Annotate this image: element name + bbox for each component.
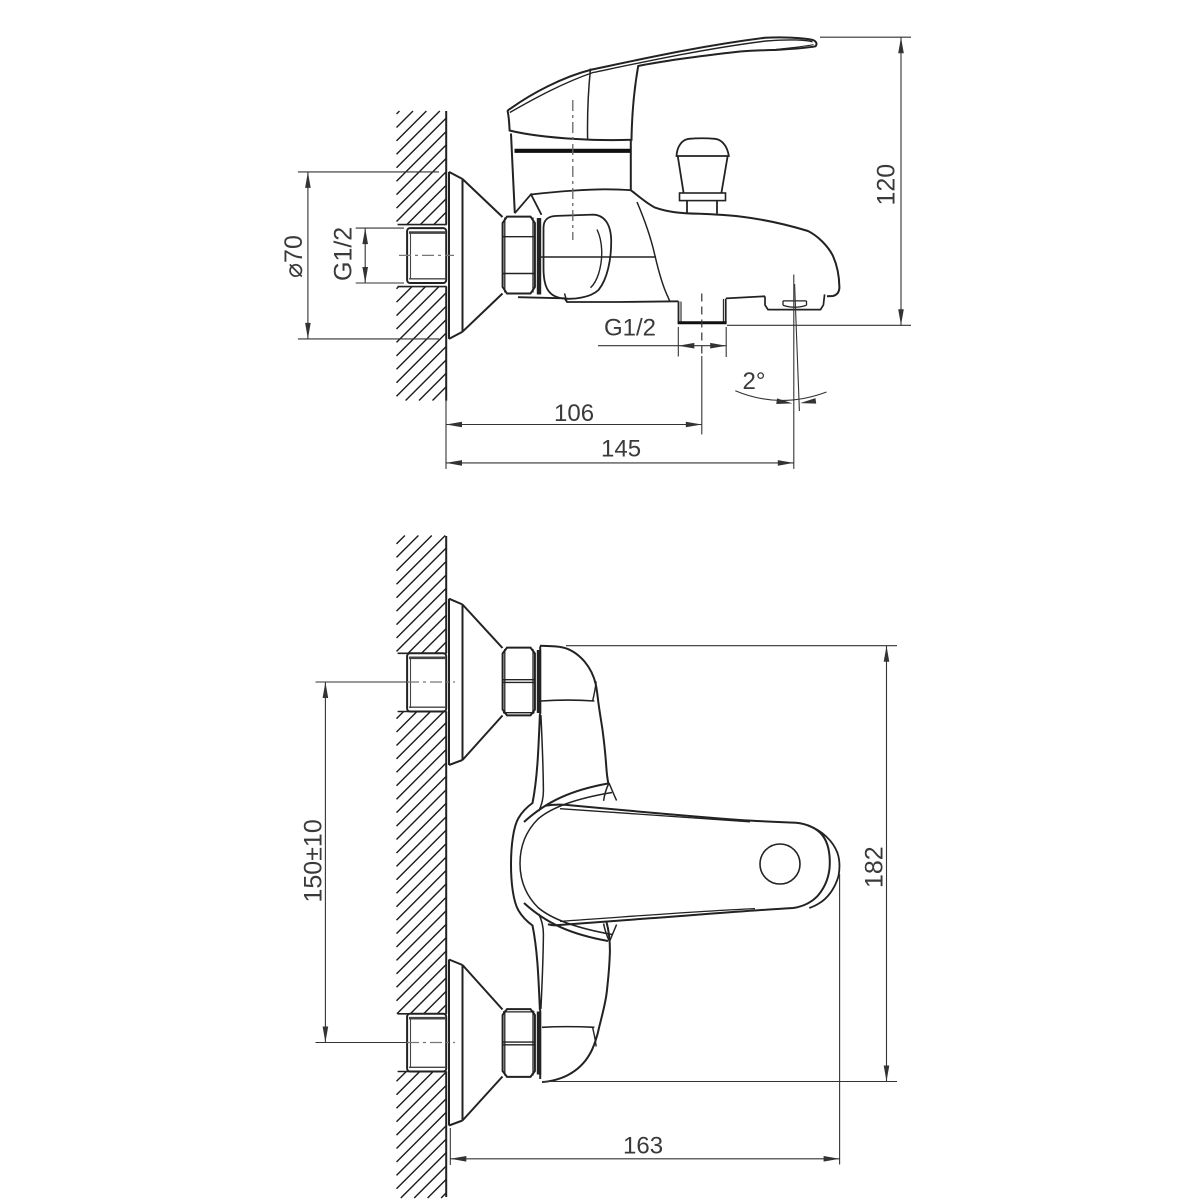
svg-text:182: 182: [861, 846, 889, 888]
svg-text:106: 106: [554, 400, 594, 427]
svg-text:163: 163: [623, 1133, 663, 1160]
svg-text:145: 145: [601, 436, 641, 463]
svg-text:120: 120: [873, 164, 901, 206]
svg-text:2°: 2°: [743, 368, 766, 395]
svg-text:G1/2: G1/2: [604, 315, 656, 342]
svg-text:G1/2: G1/2: [330, 227, 358, 281]
svg-text:⌀70: ⌀70: [280, 235, 308, 278]
svg-text:150±10: 150±10: [300, 819, 328, 902]
